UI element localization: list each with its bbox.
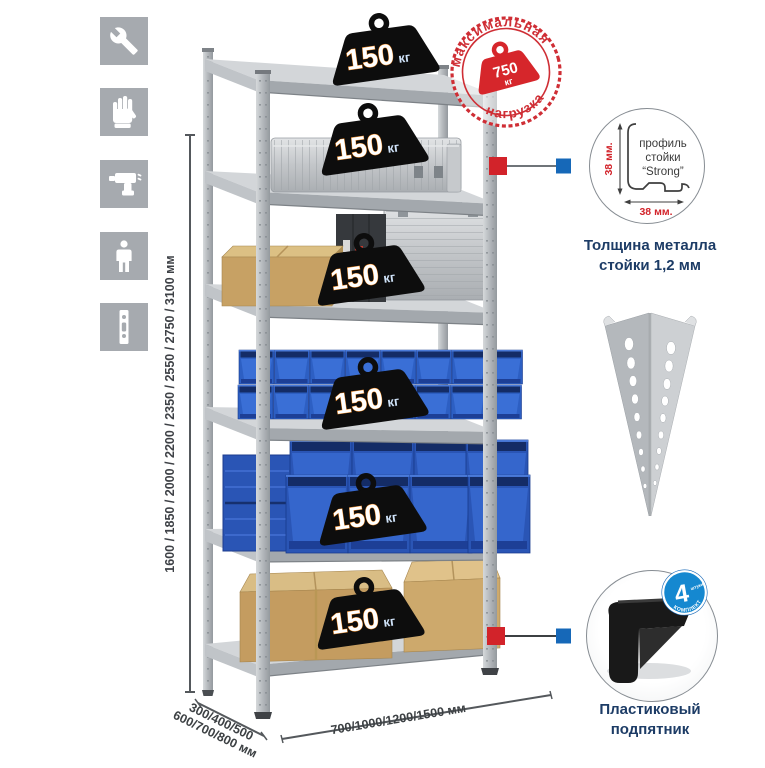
profile-caption: Толщина металла стойки 1,2 мм <box>565 236 735 275</box>
quantity-badge-glyph: 4 штуки В КОМПЛЕКТЕ <box>661 569 708 616</box>
red-marker-top <box>489 157 507 175</box>
plastic-foot-front-right <box>481 668 499 675</box>
blue-marker-top <box>556 159 571 174</box>
max-load-stamp: максимальная нагрузка 750 кг <box>438 2 573 140</box>
profile-detail-circle: 38 мм. 38 мм. профиль стойки “Strong” <box>589 108 705 224</box>
svg-text:38 мм.: 38 мм. <box>639 206 672 218</box>
plastic-foot-front-left <box>254 712 272 719</box>
svg-text:профиль: профиль <box>639 138 687 150</box>
product-infographic: 1600 / 1850 / 2000 / 2200 / 2350 / 2550 … <box>0 0 765 765</box>
foot-caption: Пластиковый подпятник <box>570 700 730 739</box>
svg-text:“Strong”: “Strong” <box>642 166 684 178</box>
svg-text:38 мм.: 38 мм. <box>603 142 615 175</box>
blue-marker-bottom <box>556 629 571 644</box>
svg-text:стойки: стойки <box>645 152 680 164</box>
quantity-badge: 4 штуки В КОМПЛЕКТЕ <box>661 569 708 616</box>
angle-post-image <box>595 300 705 535</box>
red-marker-bottom <box>487 627 505 645</box>
profile-drawing: 38 мм. 38 мм. профиль стойки “Strong” <box>590 109 703 222</box>
